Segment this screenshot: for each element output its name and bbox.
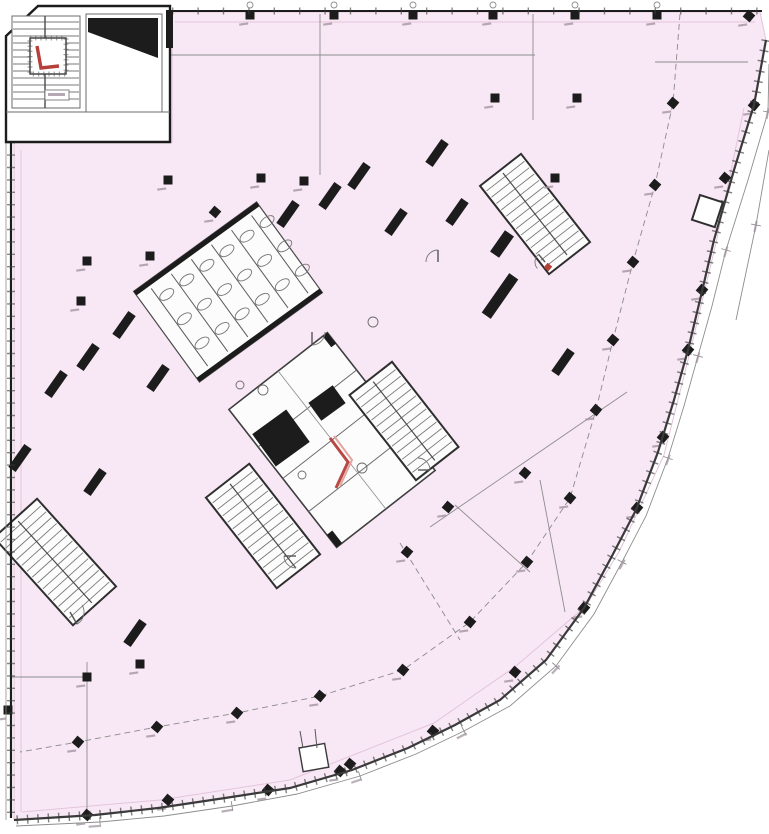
grid-axis-marker	[572, 2, 578, 8]
grid-axis-marker	[654, 2, 660, 8]
column	[83, 673, 92, 682]
floor-plan-canvas	[0, 0, 769, 834]
dimension-text-smudge	[665, 454, 671, 465]
dimension-text-smudge	[351, 778, 362, 784]
column	[77, 297, 86, 306]
dimension-text-smudge	[89, 825, 100, 828]
stair-block-east-wall	[166, 10, 173, 48]
column	[164, 176, 173, 185]
grid-axis-marker	[410, 2, 416, 8]
column	[573, 94, 582, 103]
dimension-text-smudge	[753, 221, 757, 232]
column-tag-smudge	[0, 717, 6, 720]
column	[551, 174, 560, 183]
facade-vestibule-box	[299, 743, 329, 771]
grid-axis-marker	[247, 2, 253, 8]
level-tag-smudge	[48, 93, 65, 96]
floor-plan-drawing	[0, 0, 769, 834]
column	[491, 94, 500, 103]
column	[300, 177, 309, 186]
column	[83, 257, 92, 266]
column	[257, 174, 266, 183]
grid-axis-marker	[331, 2, 337, 8]
dimension-text-smudge	[723, 246, 728, 257]
outer-dimension-line	[736, 150, 769, 320]
dimension-text-smudge	[221, 809, 232, 813]
column	[136, 660, 145, 669]
grid-axis-marker	[490, 2, 496, 8]
dimension-text-smudge	[695, 352, 700, 363]
northwest-stair-block	[6, 6, 173, 142]
dimension-text-smudge	[765, 108, 769, 119]
column	[146, 252, 155, 261]
